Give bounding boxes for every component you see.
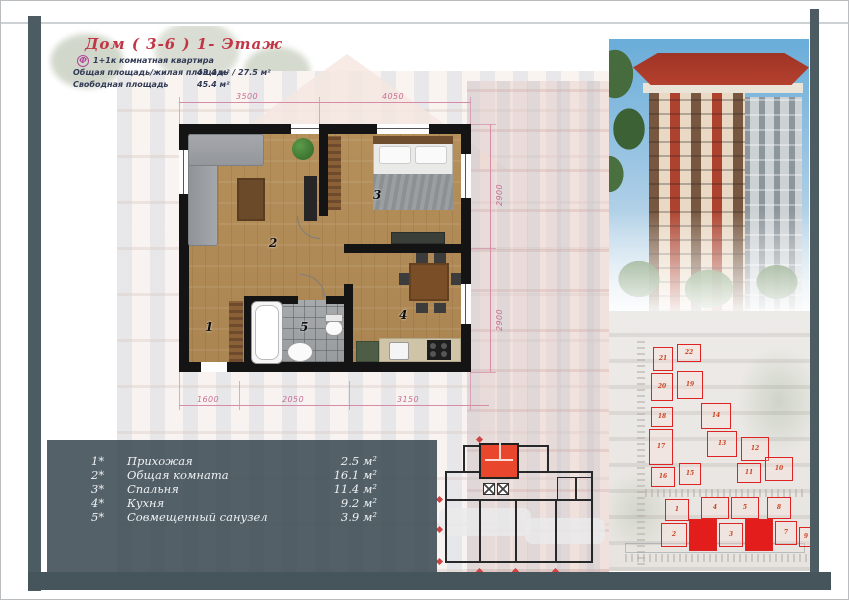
site-block-label: 1 bbox=[666, 506, 688, 513]
site-block-label: 20 bbox=[652, 383, 672, 390]
burner bbox=[441, 351, 447, 357]
key-plan-line bbox=[515, 499, 517, 563]
key-plan-highlight-line bbox=[485, 459, 513, 461]
site-block: 5 bbox=[731, 497, 759, 519]
pillow bbox=[415, 146, 447, 164]
site-block-label: 8 bbox=[768, 504, 790, 511]
pillow bbox=[379, 146, 411, 164]
site-block-label: 17 bbox=[650, 443, 672, 450]
entry-door bbox=[201, 362, 227, 372]
room-number-living: 2 bbox=[269, 236, 277, 250]
dim-label: 2900 bbox=[495, 309, 504, 331]
hall-closet bbox=[229, 301, 243, 362]
dim-ext bbox=[349, 381, 350, 410]
legend-num: 1* bbox=[91, 454, 117, 468]
site-block-label: 22 bbox=[678, 349, 700, 356]
photo-fade bbox=[609, 209, 809, 311]
site-block: 21 bbox=[653, 347, 673, 371]
dim-line-bottom bbox=[179, 405, 489, 406]
dim-label: 3500 bbox=[236, 92, 258, 101]
site-block: 3 bbox=[719, 523, 743, 547]
dim-label: 3150 bbox=[397, 395, 419, 404]
blanket bbox=[373, 174, 453, 210]
axis-marker bbox=[436, 496, 443, 503]
site-block: 16 bbox=[651, 467, 675, 487]
wall-living-bedroom bbox=[319, 124, 328, 216]
bed-headboard bbox=[373, 136, 453, 144]
wardrobe bbox=[328, 136, 341, 210]
apartment-type: 1+1к комнатная квартира bbox=[93, 56, 214, 65]
site-block: 13 bbox=[707, 431, 737, 457]
site-block-label: 2 bbox=[662, 531, 686, 538]
elevator bbox=[497, 483, 509, 495]
site-block-label: 10 bbox=[766, 465, 792, 472]
dim-line-top bbox=[179, 102, 471, 103]
site-block: 14 bbox=[701, 403, 731, 429]
site-block-label: 4 bbox=[702, 504, 728, 511]
bedroom-console bbox=[391, 232, 445, 244]
bed bbox=[373, 136, 453, 210]
window-line bbox=[377, 128, 429, 129]
dim-ext bbox=[471, 124, 496, 125]
room-number-hall: 1 bbox=[205, 320, 213, 334]
legend-area: 3.9 м² bbox=[291, 510, 377, 524]
legend-area: 2.5 м² bbox=[291, 454, 377, 468]
site-block: 8 bbox=[767, 497, 791, 519]
window-line bbox=[465, 284, 466, 324]
free-area-label: Свободная площадь bbox=[73, 80, 168, 89]
legend-row: 4* Кухня 9.2 м² bbox=[91, 496, 391, 510]
dim-ext bbox=[179, 372, 180, 410]
dim-ext bbox=[470, 372, 471, 410]
site-block: 15 bbox=[679, 463, 701, 485]
key-plan-line bbox=[479, 499, 481, 563]
dining-chair bbox=[434, 303, 446, 313]
free-area-value: 45.4 м² bbox=[197, 80, 230, 89]
site-block: 10 bbox=[765, 457, 793, 481]
dining-chair bbox=[434, 253, 446, 263]
total-area-value: 43.4 м² / 27.5 м² bbox=[197, 68, 271, 77]
window bbox=[461, 284, 471, 324]
axis-marker bbox=[476, 436, 483, 443]
site-block: 4 bbox=[701, 497, 729, 519]
door-arc bbox=[300, 274, 325, 297]
sofa bbox=[188, 134, 264, 166]
wall-bedroom-kitchen bbox=[344, 244, 471, 253]
legend-num: 5* bbox=[91, 510, 117, 524]
site-block-label: 5 bbox=[732, 504, 758, 511]
right-frame-bar bbox=[810, 9, 819, 572]
site-block: 22 bbox=[677, 344, 701, 362]
dim-label: 4050 bbox=[382, 92, 404, 101]
kitchen-sink bbox=[389, 342, 409, 360]
key-plan-highlight-line bbox=[499, 443, 501, 459]
axis-marker bbox=[436, 526, 443, 533]
bathtub-inner bbox=[255, 305, 279, 360]
site-block-label: 18 bbox=[652, 413, 672, 420]
legend-area: 16.1 м² bbox=[291, 468, 377, 482]
burner bbox=[430, 343, 436, 349]
logo-icon: Ф bbox=[77, 55, 89, 67]
site-block-label: 19 bbox=[678, 381, 702, 388]
window-line bbox=[465, 154, 466, 198]
site-block: 18 bbox=[651, 407, 673, 427]
bottom-frame-bar bbox=[28, 572, 831, 590]
site-road bbox=[637, 339, 645, 565]
dining-chair bbox=[416, 303, 428, 313]
site-block-highlighted bbox=[689, 519, 717, 551]
room-number-bath: 5 bbox=[300, 320, 308, 334]
site-block: 17 bbox=[649, 429, 673, 465]
wall-kitchen-hall bbox=[344, 284, 353, 372]
dim-ext bbox=[179, 97, 180, 124]
legend-num: 2* bbox=[91, 468, 117, 482]
axis-marker bbox=[436, 558, 443, 565]
dim-ext bbox=[471, 372, 496, 373]
site-block-label: 15 bbox=[680, 470, 700, 477]
site-block-label: 14 bbox=[702, 412, 730, 419]
burner bbox=[430, 351, 436, 357]
dim-ext bbox=[239, 381, 240, 410]
dim-label: 1600 bbox=[197, 395, 219, 404]
key-plan bbox=[437, 437, 601, 577]
legend-num: 4* bbox=[91, 496, 117, 510]
dim-ext bbox=[470, 97, 471, 124]
site-block-label: 16 bbox=[652, 473, 674, 480]
site-block-highlighted bbox=[745, 519, 773, 551]
legend-row: 3* Спальня 11.4 м² bbox=[91, 482, 391, 496]
site-block: 20 bbox=[651, 373, 673, 401]
room-number-kitchen: 4 bbox=[399, 308, 407, 322]
legend-panel: 1* Прихожая 2.5 м² 2* Общая комната 16.1… bbox=[47, 440, 437, 572]
coffee-table bbox=[237, 178, 265, 221]
site-block-label: 3 bbox=[720, 531, 742, 538]
bathroom-sink bbox=[287, 342, 313, 362]
site-block-label: 11 bbox=[738, 469, 760, 476]
site-block: 19 bbox=[677, 371, 703, 399]
page-title: Дом ( 3-6 ) 1- Этаж bbox=[85, 35, 283, 53]
dining-chair bbox=[451, 273, 461, 285]
bathtub bbox=[251, 301, 283, 364]
tv-panel bbox=[304, 176, 317, 221]
legend-row: 5* Совмещенный санузел 3.9 м² bbox=[91, 510, 391, 524]
legend-area: 11.4 м² bbox=[291, 482, 377, 496]
site-road bbox=[625, 554, 807, 562]
floor-plan: 1 2 3 4 5 bbox=[179, 124, 471, 372]
dining-chair bbox=[416, 253, 428, 263]
legend-num: 3* bbox=[91, 482, 117, 496]
toilet-tank bbox=[325, 314, 343, 322]
toilet bbox=[325, 320, 343, 336]
legend-area: 9.2 м² bbox=[291, 496, 377, 510]
site-block-label: 7 bbox=[776, 529, 796, 536]
site-block: 7 bbox=[775, 521, 797, 545]
legend-row: 2* Общая комната 16.1 м² bbox=[91, 468, 391, 482]
dim-label: 2050 bbox=[282, 395, 304, 404]
building-photo bbox=[609, 39, 809, 311]
site-block-label: 13 bbox=[708, 440, 736, 447]
plan-sheet: Дом ( 3-6 ) 1- Этаж Ф 1+1к комнатная ква… bbox=[0, 0, 849, 600]
site-road bbox=[645, 489, 805, 497]
fridge bbox=[356, 341, 379, 362]
site-block: 1 bbox=[665, 499, 689, 521]
dim-label: 2900 bbox=[495, 184, 504, 206]
left-frame-bar bbox=[28, 16, 41, 591]
dining-chair bbox=[399, 273, 409, 285]
burner bbox=[441, 343, 447, 349]
dim-ext bbox=[319, 97, 320, 124]
legend-row: 1* Прихожая 2.5 м² bbox=[91, 454, 391, 468]
window-line bbox=[183, 150, 184, 194]
window bbox=[461, 154, 471, 198]
site-block-label: 21 bbox=[654, 355, 672, 362]
plant bbox=[292, 138, 314, 160]
photo-red-cap bbox=[633, 53, 809, 85]
site-block: 11 bbox=[737, 463, 761, 483]
key-plan-line bbox=[575, 477, 577, 501]
top-rule bbox=[1, 22, 849, 24]
site-block-label: 12 bbox=[742, 445, 768, 452]
wall-bath-top-stub bbox=[326, 296, 344, 304]
elevator bbox=[483, 483, 495, 495]
stove bbox=[427, 340, 451, 360]
key-plan-highlight bbox=[479, 443, 519, 479]
site-block: 2 bbox=[661, 523, 687, 547]
key-plan-line bbox=[555, 499, 557, 563]
room-number-bedroom: 3 bbox=[373, 188, 381, 202]
dining-table bbox=[409, 263, 449, 301]
dim-ext bbox=[471, 248, 496, 249]
window bbox=[377, 124, 429, 134]
